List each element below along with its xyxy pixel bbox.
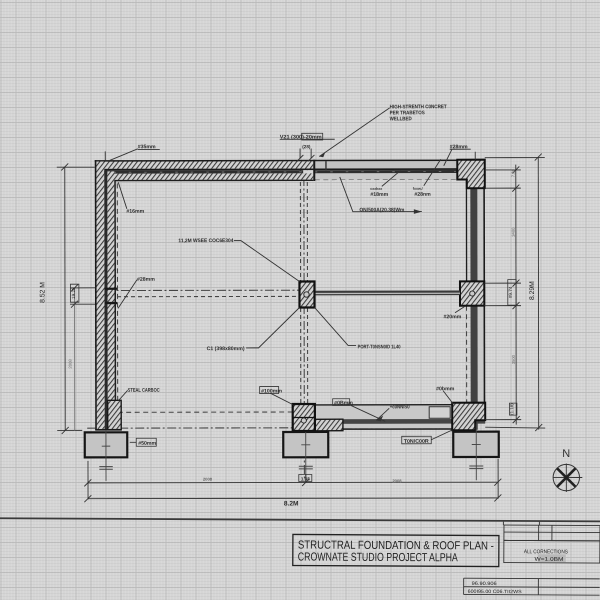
svg-text:#28mm: #28mm: [450, 144, 468, 150]
svg-text:11,2M WSEE COC6E304: 11,2M WSEE COC6E304: [178, 238, 233, 244]
svg-text:cxxkxx: cxxkxx: [370, 187, 382, 191]
svg-text:WELLBED: WELLBED: [390, 116, 412, 122]
svg-text:#20mm: #20mm: [444, 314, 462, 320]
svg-text:8.2M: 8.2M: [284, 501, 299, 508]
svg-text:19.28: 19.28: [71, 287, 76, 299]
svg-text:#18mm: #18mm: [370, 192, 388, 198]
svg-text:#0bmm: #0bmm: [436, 386, 455, 392]
svg-text:8.52 M: 8.52 M: [39, 282, 46, 303]
svg-text:+c0NNIS0: +c0NNIS0: [390, 404, 410, 410]
svg-text:3400: 3400: [511, 227, 516, 237]
svg-text:(1.18): (1.18): [509, 403, 514, 415]
svg-text:STEAL CARBOC: STEAL CARBOC: [128, 388, 160, 394]
svg-text:#16mm: #16mm: [126, 209, 144, 215]
svg-text:96.90.906: 96.90.906: [472, 581, 497, 587]
svg-text:#28mm: #28mm: [137, 277, 155, 283]
svg-text:3500: 3500: [511, 354, 516, 364]
svg-text:600I95.00 C06.TII2WS: 600I95.00 C06.TII2WS: [468, 589, 522, 595]
svg-text:CROWNATE STUDIO PROJECT ALPHA: CROWNATE STUDIO PROJECT ALPHA: [298, 550, 458, 564]
svg-text:(28): (28): [302, 144, 311, 149]
svg-text:2008: 2008: [392, 478, 402, 483]
svg-text:N: N: [562, 448, 570, 460]
svg-text:ALL CORNECTIONS: ALL CORNECTIONS: [524, 549, 568, 555]
svg-text:7.88: 7.88: [511, 168, 516, 177]
svg-text:ON/500A(20.38)Wm: ON/500A(20.38)Wm: [359, 207, 404, 213]
svg-text:W=1.0BM: W=1.0BM: [534, 557, 564, 563]
svg-text:C1 (398x80mm): C1 (398x80mm): [207, 346, 245, 352]
svg-text:2008: 2008: [68, 359, 73, 369]
svg-text:fxxw./: fxxw./: [413, 187, 423, 191]
svg-text:1.38: 1.38: [301, 476, 310, 481]
svg-text:8.29M: 8.29M: [529, 281, 536, 300]
svg-text:#35mm: #35mm: [138, 144, 156, 150]
svg-text:#28nm: #28nm: [414, 192, 431, 198]
svg-text:2008: 2008: [203, 477, 213, 482]
svg-text:PORT-T0NSN0ID 1L40: PORT-T0NSN0ID 1L40: [358, 344, 401, 350]
svg-text:#9.74: #9.74: [508, 286, 513, 298]
